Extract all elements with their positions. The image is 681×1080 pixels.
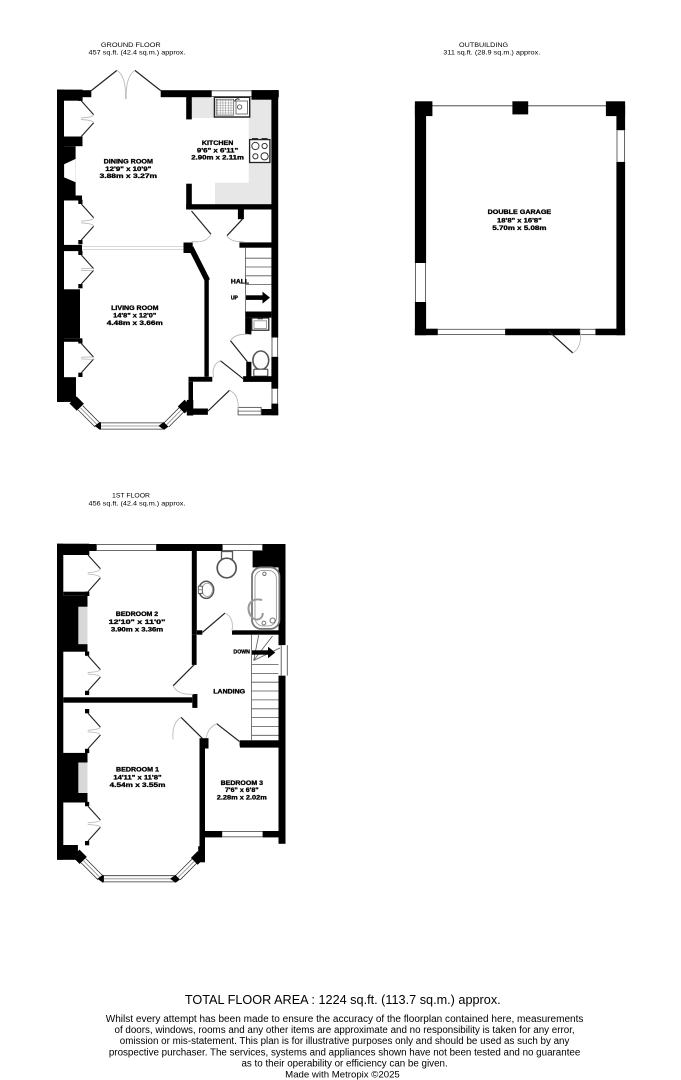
svg-text:Whilst every attempt has been: Whilst every attempt has been made to en…: [106, 1014, 584, 1025]
svg-text:3.88m x 3.27m: 3.88m x 3.27m: [100, 173, 158, 180]
svg-text:UP: UP: [231, 296, 239, 302]
svg-text:1ST FLOOR: 1ST FLOOR: [112, 493, 150, 500]
svg-text:2.90m x 2.11m: 2.90m x 2.11m: [191, 155, 244, 162]
svg-text:as to their operability or eff: as to their operability or efficiency ca…: [241, 1059, 447, 1070]
svg-text:12'10" x 11'0": 12'10" x 11'0": [109, 619, 166, 626]
svg-text:18'8" x 16'8": 18'8" x 16'8": [497, 217, 542, 224]
svg-text:DOWN: DOWN: [233, 649, 250, 655]
svg-text:omission or mis-statement. Thi: omission or mis-statement. This plan is …: [120, 1036, 570, 1047]
svg-text:OUTBUILDING: OUTBUILDING: [459, 42, 508, 49]
svg-text:14'11" x 11'8": 14'11" x 11'8": [113, 774, 161, 781]
svg-text:12'9" x 10'9": 12'9" x 10'9": [105, 166, 151, 173]
svg-text:LANDING: LANDING: [213, 689, 245, 696]
svg-text:7'6" x 6'8": 7'6" x 6'8": [225, 787, 259, 794]
svg-text:4.48m x 3.66m: 4.48m x 3.66m: [107, 320, 164, 327]
svg-text:BEDROOM 1: BEDROOM 1: [116, 767, 160, 774]
svg-text:9'6" x 6'11": 9'6" x 6'11": [197, 147, 239, 154]
svg-text:DOUBLE GARAGE: DOUBLE GARAGE: [488, 209, 552, 216]
svg-text:14'8" x 12'0": 14'8" x 12'0": [113, 313, 156, 320]
svg-text:3.90m x 3.36m: 3.90m x 3.36m: [111, 627, 164, 634]
svg-text:457 sq.ft. (42.4 sq.m.) approx: 457 sq.ft. (42.4 sq.m.) approx.: [89, 49, 186, 56]
svg-text:HALL: HALL: [231, 279, 250, 286]
svg-text:TOTAL FLOOR AREA : 1224 sq.ft.: TOTAL FLOOR AREA : 1224 sq.ft. (113.7 sq…: [185, 992, 501, 1007]
svg-text:GROUND FLOOR: GROUND FLOOR: [101, 42, 161, 49]
svg-text:456 sq.ft. (42.4 sq.m.) approx: 456 sq.ft. (42.4 sq.m.) approx.: [89, 501, 186, 508]
svg-text:4.54m x 3.55m: 4.54m x 3.55m: [110, 782, 167, 789]
svg-text:KITCHEN: KITCHEN: [202, 140, 234, 147]
svg-text:of doors, windows, rooms and a: of doors, windows, rooms and any other i…: [115, 1025, 575, 1036]
svg-text:5.70m x 5.08m: 5.70m x 5.08m: [492, 225, 547, 232]
svg-text:BEDROOM 2: BEDROOM 2: [116, 611, 159, 618]
svg-text:LIVING ROOM: LIVING ROOM: [111, 305, 158, 312]
svg-text:prospective purchaser. The ser: prospective purchaser. The services, sys…: [109, 1047, 581, 1058]
svg-text:DINING ROOM: DINING ROOM: [104, 159, 153, 166]
svg-text:Made with Metropix ©2025: Made with Metropix ©2025: [285, 1070, 400, 1080]
svg-text:BEDROOM 3: BEDROOM 3: [221, 780, 264, 787]
svg-text:2.28m x 2.02m: 2.28m x 2.02m: [217, 794, 268, 801]
svg-text:311 sq.ft. (28.9 sq.m.) approx: 311 sq.ft. (28.9 sq.m.) approx.: [443, 49, 540, 56]
